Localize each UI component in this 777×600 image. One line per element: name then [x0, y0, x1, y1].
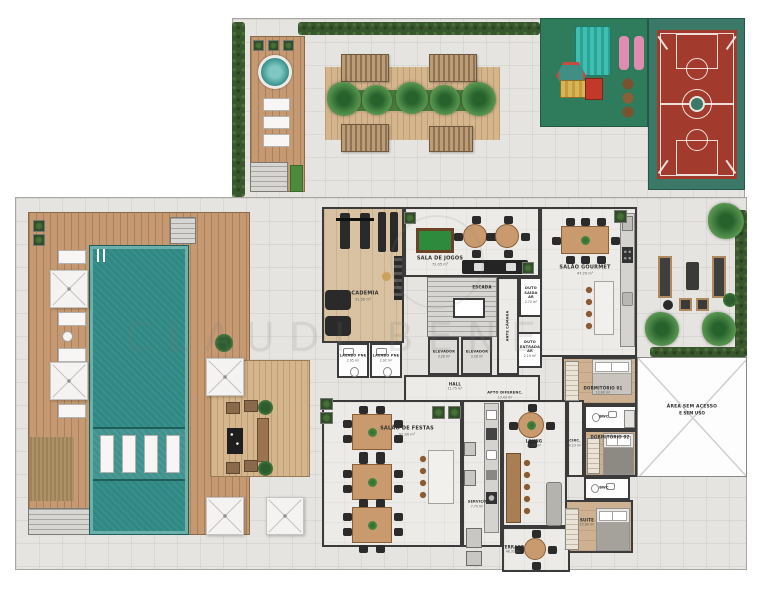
label-bwc-2: BWC [599, 486, 609, 491]
planter-icon [253, 40, 264, 51]
label-lavabo-pne-2: LAVABO PNE2.92 m² [373, 354, 400, 363]
lounger [58, 312, 86, 326]
living-sofa [546, 482, 562, 526]
planter-icon [33, 220, 45, 232]
room-bwc-1 [584, 405, 637, 430]
chair-icon [566, 218, 575, 226]
label-salao-gourmet: SALÃO GOURMET47.70 m² [559, 264, 610, 275]
chair-icon [546, 422, 555, 430]
palm-icon [327, 82, 361, 116]
play-bars [634, 36, 644, 70]
palm-icon [708, 203, 744, 239]
bush-icon [723, 293, 737, 307]
court-key-top [676, 34, 718, 69]
palm-icon [396, 82, 428, 114]
chair-icon [454, 233, 463, 241]
label-elevador-2: ELEVADOR3.28 m² [466, 350, 488, 359]
lounge-stool [226, 462, 240, 474]
utility-box [464, 470, 476, 486]
label-dormitorio-02: DORMITÓRIO 02 [591, 434, 630, 439]
lounge-table [257, 418, 269, 462]
lounger [263, 116, 290, 129]
label-circ: CIRC.4.23 m² [569, 439, 582, 448]
deck-stairs [170, 217, 196, 244]
toilet-icon [383, 367, 392, 377]
chair-icon [521, 233, 530, 241]
ottoman [679, 298, 692, 311]
cooktop-icon [622, 247, 633, 263]
label-dormitorio-01: DORMITÓRIO 0112.60 m² [584, 385, 623, 394]
gym-ball [382, 272, 391, 281]
umbrella [206, 497, 244, 535]
blanket [604, 447, 633, 474]
toilet-icon [350, 367, 359, 377]
swimming-pool [90, 246, 188, 534]
chair-icon [376, 499, 385, 507]
chair-icon [532, 530, 541, 538]
chair-icon [376, 406, 385, 414]
umbrella [266, 497, 304, 535]
planter-icon [448, 406, 461, 419]
label-escada: ESCADA [472, 284, 491, 289]
toilet-icon [591, 484, 599, 493]
umbrella [50, 270, 88, 308]
umbrella [206, 358, 244, 396]
label-academia: ACADEMIA31.50 m² [347, 290, 378, 301]
gym-barbell [336, 218, 374, 221]
chair-icon [552, 237, 561, 245]
dining-table [561, 226, 609, 254]
pergola [341, 124, 389, 152]
plant-icon [527, 421, 536, 430]
palm-icon [702, 312, 736, 346]
planter-icon [283, 40, 294, 51]
lounge-stool [244, 460, 258, 472]
pergola [341, 54, 389, 82]
chair-icon [581, 256, 590, 264]
chair-icon [359, 406, 368, 414]
sofa-pillow [506, 263, 516, 271]
chair-icon [359, 545, 368, 553]
deck-stairs [250, 162, 288, 192]
utility-box [466, 528, 482, 548]
sofa [462, 260, 528, 274]
deck-stairs [28, 508, 92, 535]
wardrobe [565, 361, 579, 401]
party-island [428, 450, 454, 504]
planter-icon [33, 234, 45, 246]
sofa-pillow [474, 263, 484, 271]
submerged-lounger [144, 435, 158, 473]
chair-icon [504, 216, 513, 224]
billiard-table [416, 228, 454, 253]
chair-icon [394, 528, 403, 536]
court-center-spot [689, 96, 705, 112]
kitchen-island [594, 281, 614, 335]
label-area-sem-acesso: ÁREA SEM ACESSOE SEM USO [667, 404, 717, 415]
chair-icon [343, 420, 352, 428]
chair-icon [394, 513, 403, 521]
planter-icon [320, 398, 333, 410]
chair-icon [394, 470, 403, 478]
bush-icon [258, 461, 273, 476]
card-table [495, 224, 519, 248]
chair-icon [343, 435, 352, 443]
label-elevador-1: ELEVADOR3.28 m² [433, 350, 455, 359]
utility-box [464, 442, 476, 456]
pool-ladder-icon [97, 249, 99, 262]
gym-spin-bike [325, 316, 351, 336]
chair-icon [359, 456, 368, 464]
label-suite: SUITE15.60 m² [580, 517, 595, 526]
bar-stools [419, 454, 427, 502]
submerged-lounger [166, 435, 180, 473]
bed [596, 508, 630, 551]
living-counter [506, 453, 521, 523]
kitchen-counter [620, 213, 635, 347]
lounger [58, 250, 86, 264]
label-duto-saida-ar: DUTO SAÍDA AR2.70 m² [521, 286, 541, 304]
label-terraco: TERRAÇO48.32 m² [502, 544, 524, 553]
coffee-table [227, 428, 243, 454]
chair-icon [394, 485, 403, 493]
planter-icon [432, 406, 445, 419]
pillow [612, 511, 627, 521]
planter-icon [268, 40, 279, 51]
label-salao-de-festas: SALÃO DE FESTAS91.30 m² [380, 425, 434, 436]
submerged-lounger [100, 435, 114, 473]
terrace-lounger [658, 256, 672, 298]
chair-icon [566, 256, 575, 264]
plant-icon [581, 236, 590, 245]
label-duto-entrada-ar: DUTO ENTRADA AR2.19 m² [519, 340, 541, 358]
planter-icon [404, 212, 416, 224]
chair-icon [343, 528, 352, 536]
lounger [58, 348, 86, 362]
card-table [463, 224, 487, 248]
pillow [611, 362, 629, 372]
side-table [62, 331, 73, 342]
chair-icon [343, 513, 352, 521]
palm-icon [362, 85, 392, 115]
utility-box [466, 551, 482, 566]
pool-ladder-icon [103, 249, 105, 262]
plant-icon [368, 428, 377, 437]
label-apto-diferenc: APTO DIFERENC.13.43 m² [487, 391, 523, 400]
planter-icon [614, 210, 627, 223]
terrace-lounger [712, 256, 726, 298]
pergola [429, 54, 477, 82]
palm-icon [430, 85, 460, 115]
chair-icon [472, 216, 481, 224]
service-counter [484, 403, 499, 533]
sports-court [657, 30, 737, 179]
terrace-table [524, 538, 546, 560]
floor-plan: ACADEMIA31.50 m² SALA DE JOGOS72.05 m² E… [0, 0, 777, 600]
grass-strip [290, 165, 303, 192]
label-hall: HALL11.75 m² [448, 381, 463, 390]
living-table [518, 412, 544, 438]
jacuzzi [258, 55, 292, 89]
chair-icon [581, 218, 590, 226]
bar-stools [523, 458, 531, 518]
party-table [352, 507, 392, 543]
label-bwc-1: BWC [599, 415, 609, 420]
chair-icon [509, 422, 518, 430]
chair-icon [548, 546, 557, 554]
terrace-chair [686, 262, 699, 290]
planter-icon [522, 262, 534, 274]
bar-stools [585, 285, 593, 333]
wardrobe [587, 438, 600, 474]
lounger [58, 404, 86, 418]
chair-icon [528, 404, 537, 412]
hedge-bottom [650, 347, 747, 357]
side-table [663, 300, 673, 310]
washer-icon [486, 492, 497, 504]
gym-treadmill [378, 212, 386, 252]
plant-icon [368, 521, 377, 530]
play-slide [585, 78, 603, 100]
chair-icon [376, 456, 385, 464]
sink-icon [486, 450, 497, 460]
planter-icon [320, 412, 333, 424]
label-lavabo-pne-1: LAVABO PNE2.95 m² [340, 354, 367, 363]
lounger [263, 98, 290, 111]
appliance-icon [486, 470, 497, 480]
palm-icon [462, 82, 496, 116]
gym-dumbbell-rack [394, 256, 402, 300]
lounger [263, 134, 290, 147]
lounge-stool [244, 400, 258, 412]
room-area-sem-acesso [637, 357, 747, 477]
chair-icon [486, 233, 495, 241]
label-ante-camara: ANTE CÂMARA [506, 311, 511, 342]
wardrobe [565, 508, 579, 550]
shower-icon [624, 410, 635, 428]
chair-icon [611, 237, 620, 245]
sink-icon [622, 292, 633, 306]
stair-landing [453, 298, 485, 318]
chair-icon [343, 470, 352, 478]
chair-icon [597, 256, 606, 264]
chair-icon [532, 562, 541, 570]
appliance-icon [486, 428, 497, 440]
court-key-bottom [676, 140, 718, 175]
hedge-left [232, 22, 245, 197]
play-bars [619, 36, 629, 70]
chair-icon [343, 485, 352, 493]
chair-icon [597, 218, 606, 226]
hedge-top [298, 22, 540, 35]
chair-icon [376, 545, 385, 553]
label-servico: SERVIÇO7.70 m² [468, 500, 487, 509]
bush-icon [258, 400, 273, 415]
pergola [429, 126, 473, 152]
chair-icon [359, 499, 368, 507]
label-sala-de-jogos: SALA DE JOGOS72.05 m² [417, 255, 463, 266]
plant-icon [368, 478, 377, 487]
umbrella [50, 362, 88, 400]
ottoman [696, 298, 709, 311]
no-access-x-lines [638, 358, 746, 476]
bush-icon [215, 334, 233, 352]
blanket [597, 522, 629, 550]
chair-icon [504, 250, 513, 258]
party-table [352, 464, 392, 500]
sink-icon [608, 411, 617, 418]
grass-patch [30, 437, 74, 501]
play-totem [620, 76, 636, 120]
chair-icon [472, 250, 481, 258]
appliance-icon [486, 410, 497, 420]
label-living: LIVING27.76 m² [526, 438, 542, 447]
submerged-lounger [122, 435, 136, 473]
lounge-stool [226, 402, 240, 414]
palm-icon [645, 312, 679, 346]
gym-treadmill [390, 212, 398, 252]
